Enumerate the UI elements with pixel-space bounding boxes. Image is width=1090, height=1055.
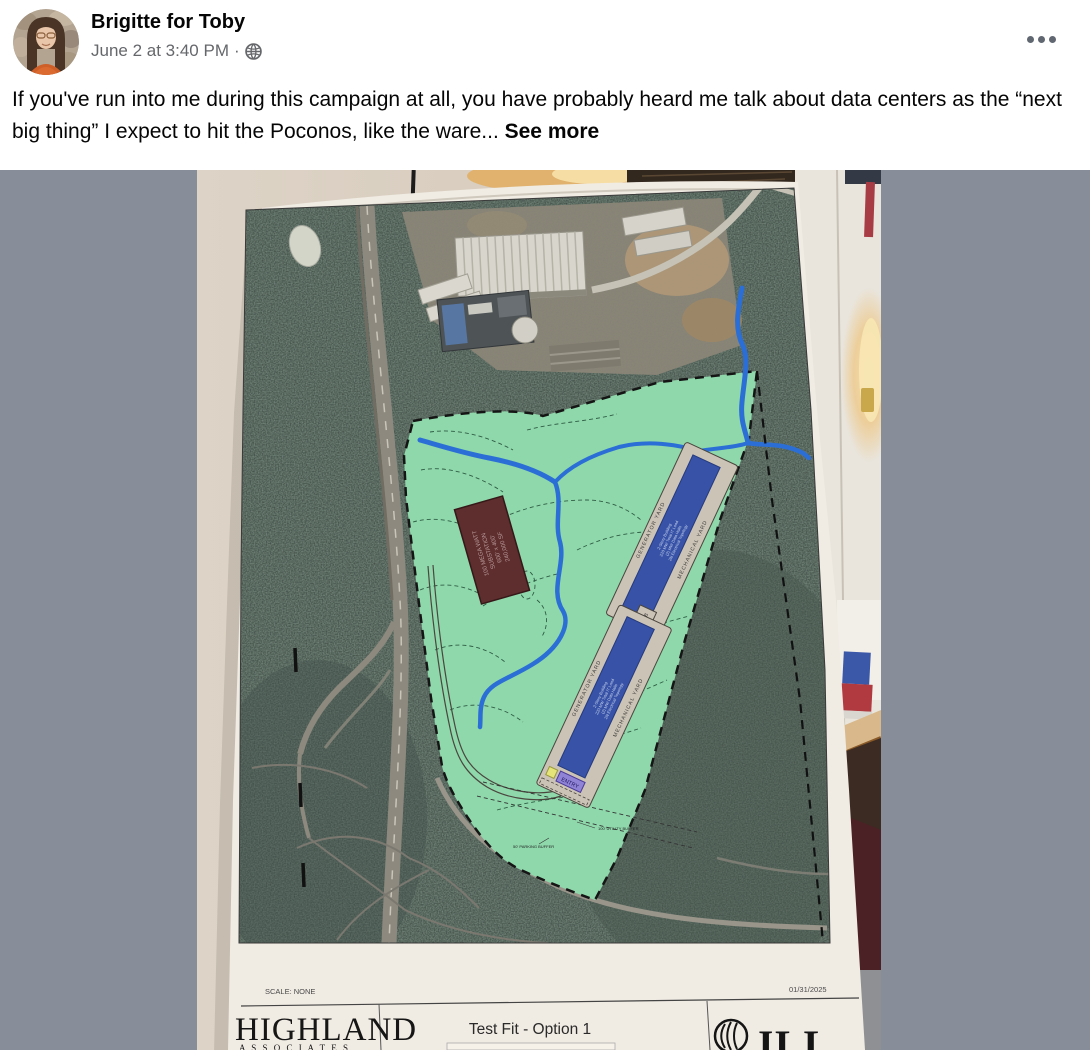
avatar-image (13, 9, 79, 75)
blue-box (842, 651, 871, 684)
avatar[interactable] (13, 9, 79, 75)
sheet-date: 01/31/2025 (789, 985, 827, 994)
red-box (840, 683, 872, 712)
svg-text:JLL: JLL (753, 1022, 832, 1050)
buffer-label-1: 100' UTILITY BUFFER (598, 826, 639, 831)
photo-letterbox: 100 MEGA WATT SUBSTATION 600' x 400' 240… (0, 170, 1090, 1050)
firm-subtitle: A S S O C I A T E S (239, 1043, 350, 1050)
aerial-map: 100 MEGA WATT SUBSTATION 600' x 400' 240… (207, 178, 877, 990)
meta-separator: · (234, 41, 240, 61)
post-photo[interactable]: 100 MEGA WATT SUBSTATION 600' x 400' 240… (197, 170, 881, 1050)
see-more-link[interactable]: See more (505, 120, 600, 143)
post-body: If you've run into me during this campai… (12, 84, 1080, 147)
post-menu-button[interactable] (1021, 30, 1062, 49)
sheet-title: Test Fit - Option 1 (469, 1021, 591, 1038)
door-hinge (861, 388, 874, 412)
scale-label: SCALE: NONE (265, 987, 315, 996)
site-plan-photo: 100 MEGA WATT SUBSTATION 600' x 400' 240… (197, 170, 881, 1050)
post-meta: June 2 at 3:40 PM · (91, 41, 262, 61)
post-header: Brigitte for Toby June 2 at 3:40 PM · If… (0, 0, 1090, 170)
buffer-label-2: 50' PARKING BUFFER (513, 844, 554, 849)
globe-icon (245, 43, 262, 60)
author-name[interactable]: Brigitte for Toby (91, 11, 245, 34)
timestamp[interactable]: June 2 at 3:40 PM (91, 41, 229, 61)
